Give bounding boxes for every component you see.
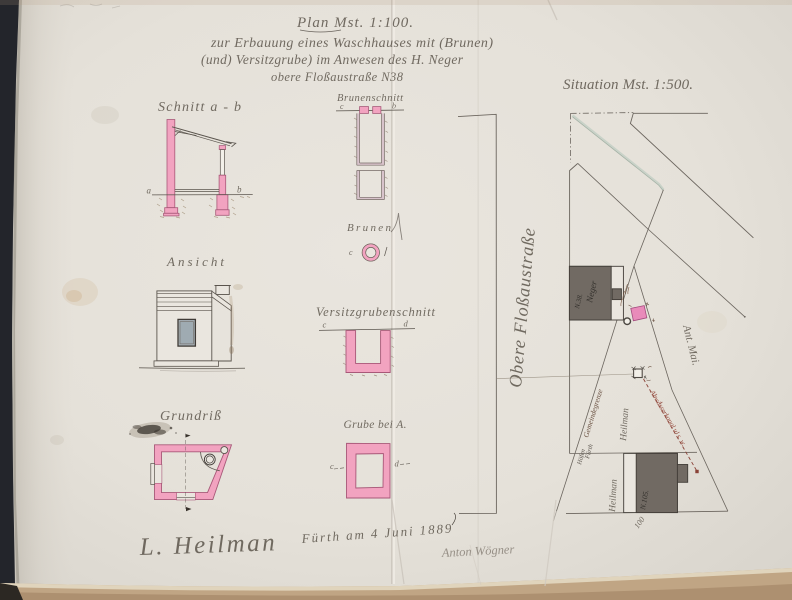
svg-text:c: c xyxy=(323,320,327,330)
svg-text:b: b xyxy=(392,102,396,111)
svg-text:b: b xyxy=(237,185,242,195)
svg-text:(und) Versitzgrube) im Anwesen: (und) Versitzgrube) im Anwesen des H. Ne… xyxy=(201,52,464,67)
svg-text:Grube bei A.: Grube bei A. xyxy=(344,419,407,431)
svg-text:Plan Mst. 1:100.: Plan Mst. 1:100. xyxy=(296,15,413,31)
svg-text:Situation Mst. 1:500.: Situation Mst. 1:500. xyxy=(563,77,693,93)
svg-text:zur Erbauung eines Waschhauses: zur Erbauung eines Waschhauses mit (Brun… xyxy=(210,36,493,51)
svg-text:Grundriß: Grundriß xyxy=(160,409,221,424)
svg-text:c: c xyxy=(349,248,353,257)
svg-text:Heilman: Heilman xyxy=(608,479,620,513)
svg-text:c: c xyxy=(330,461,334,471)
svg-text:Versitzgrubenschnitt: Versitzgrubenschnitt xyxy=(316,305,436,319)
svg-text:Schnitt a - b: Schnitt a - b xyxy=(158,100,241,115)
svg-text:obere Floßaustraße N38: obere Floßaustraße N38 xyxy=(271,70,404,84)
svg-text:c: c xyxy=(340,102,344,111)
svg-text:a: a xyxy=(147,186,152,196)
svg-text:Ansicht: Ansicht xyxy=(166,254,224,269)
